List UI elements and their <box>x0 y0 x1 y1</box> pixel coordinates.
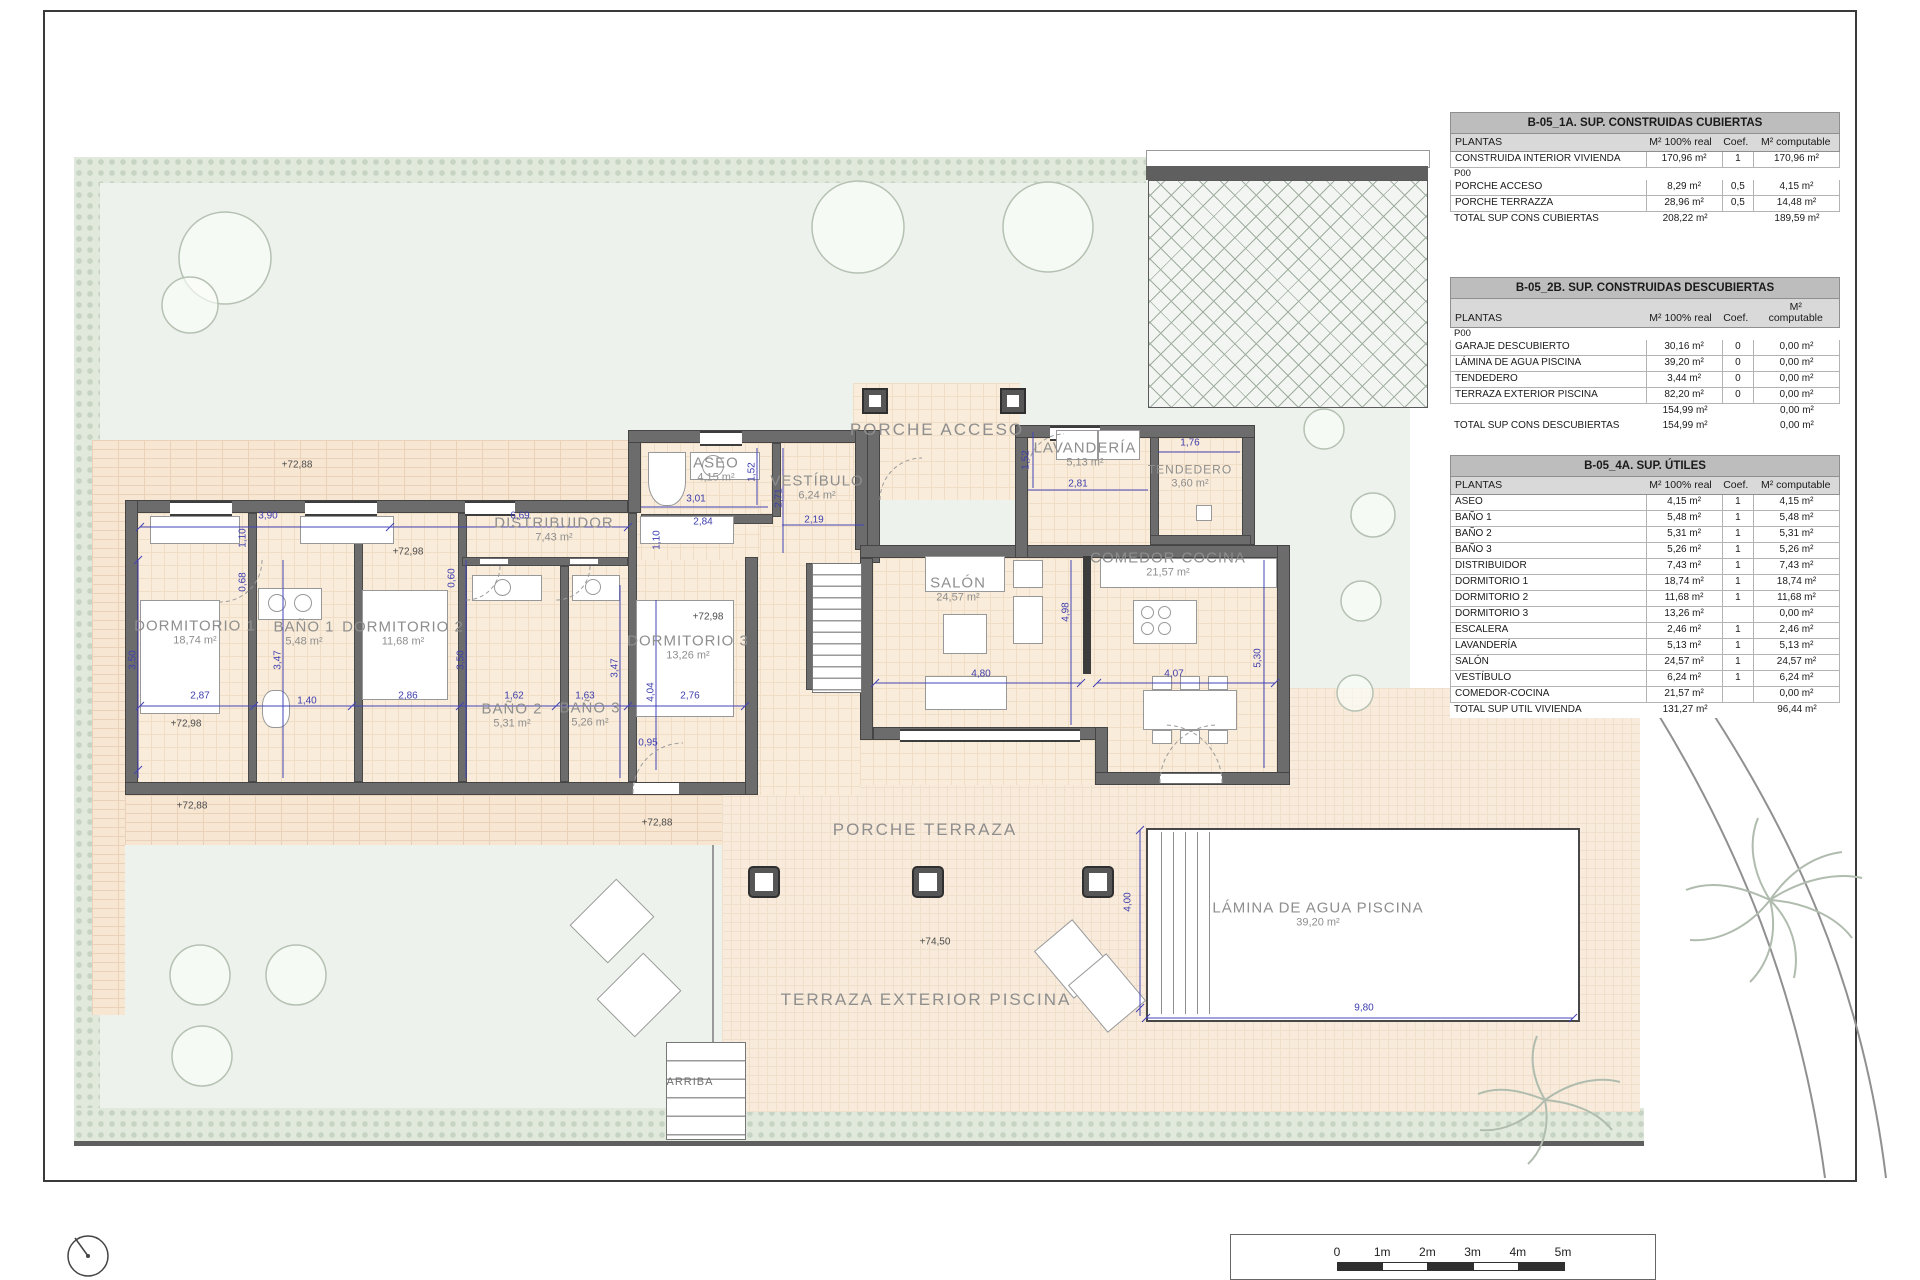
chair <box>1208 730 1228 744</box>
table-row: P00 <box>1450 328 1840 340</box>
door-opening <box>1160 774 1222 783</box>
dimension-label: 1,62 <box>504 691 523 702</box>
table-cell: 0 <box>1723 340 1754 355</box>
room-label: DORMITORIO 313,26 m² <box>627 634 749 663</box>
toilet <box>648 452 686 506</box>
dimension-label: 0,68 <box>238 572 249 591</box>
dimension-label: 2,81 <box>1068 479 1087 490</box>
table-cell: 0,00 m² <box>1754 607 1840 622</box>
room-label: LÁMINA DE AGUA PISCINA39,20 m² <box>1212 901 1423 930</box>
site-wall-north <box>1146 166 1428 180</box>
level-mark: +72,88 <box>177 801 208 812</box>
scale-label: 1m <box>1374 1245 1391 1259</box>
scale-segment <box>1518 1262 1565 1271</box>
table-cell: TENDEDERO <box>1450 372 1647 387</box>
room-label: DORMITORIO 118,74 m² <box>134 619 256 648</box>
level-mark: +72,88 <box>282 460 313 471</box>
dimension-label: 2,87 <box>190 691 209 702</box>
table-cell: 131,27 m² <box>1647 703 1723 718</box>
table-header-cell: M² computable <box>1752 477 1839 494</box>
terrace-column <box>1082 866 1114 898</box>
dimension-label: 9,80 <box>1354 1003 1373 1014</box>
table-row: CONSTRUIDA INTERIOR VIVIENDA170,96 m²117… <box>1450 152 1840 168</box>
table-header: PLANTASM² 100% realCoef.M² computable <box>1450 299 1840 328</box>
table-cell: LAVANDERÍA <box>1450 639 1647 654</box>
table-cell: 7,43 m² <box>1754 559 1840 574</box>
table-header-cell: M² 100% real <box>1642 134 1719 151</box>
scale-bar <box>1230 1234 1656 1280</box>
table-cell: 5,26 m² <box>1647 543 1723 558</box>
table-cell: 14,48 m² <box>1754 196 1840 211</box>
table-header-cell: PLANTAS <box>1451 310 1642 327</box>
room-label: DORMITORIO 211,68 m² <box>342 620 464 649</box>
dimension-label: 6,69 <box>510 511 529 522</box>
staircase <box>812 563 862 693</box>
scale-segment <box>1337 1262 1384 1271</box>
wardrobe <box>300 516 394 544</box>
room-label: BAÑO 25,31 m² <box>481 702 542 731</box>
dimension-label: 4,07 <box>1164 669 1183 680</box>
table-cell: 24,57 m² <box>1647 655 1723 670</box>
porch-column <box>1000 388 1026 414</box>
table-cell: 0 <box>1723 388 1754 403</box>
table-cell: 8,29 m² <box>1647 180 1723 195</box>
room-label: COMEDOR-COCINA21,57 m² <box>1090 551 1246 580</box>
hob-burner <box>1141 606 1154 619</box>
sink <box>494 579 511 596</box>
dimension-label: 1,52 <box>747 462 758 481</box>
dimension-label: 3,90 <box>258 511 277 522</box>
table-cell: DORMITORIO 1 <box>1450 575 1647 590</box>
table-cell: 1 <box>1723 671 1754 686</box>
dimension-label: 1,10 <box>652 530 663 549</box>
table-cell: 82,20 m² <box>1647 388 1723 403</box>
table-cell: 28,96 m² <box>1647 196 1723 211</box>
table-cell: 1 <box>1723 495 1754 510</box>
room-label: PORCHE ACCESO <box>850 422 1024 438</box>
table-header: PLANTASM² 100% realCoef.M² computable <box>1450 134 1840 152</box>
table-cell: 0,00 m² <box>1754 340 1840 355</box>
scale-label: 4m <box>1509 1245 1526 1259</box>
dimension-label: 4,80 <box>971 669 990 680</box>
table-cell: 0,00 m² <box>1754 372 1840 387</box>
dimension-label: 2,19 <box>804 515 823 526</box>
terrace-column <box>748 866 780 898</box>
scale-label: 5m <box>1555 1245 1572 1259</box>
sofa <box>925 676 1007 710</box>
table-cell: 2,46 m² <box>1647 623 1723 638</box>
table-cell: LÁMINA DE AGUA PISCINA <box>1450 356 1647 371</box>
table-row: VESTÍBULO6,24 m²16,24 m² <box>1450 671 1840 687</box>
door-opening <box>633 783 679 794</box>
table-cell: 1 <box>1723 655 1754 670</box>
table-header-cell: M² computable <box>1752 299 1839 327</box>
terrace-column <box>912 866 944 898</box>
scale-segment <box>1473 1262 1520 1271</box>
table-cell: 21,57 m² <box>1647 687 1723 702</box>
wall <box>745 557 758 795</box>
table-cell: TOTAL SUP CONS DESCUBIERTAS <box>1450 419 1647 434</box>
table-cell: 1 <box>1723 527 1754 542</box>
table-cell: CONSTRUIDA INTERIOR VIVIENDA <box>1450 152 1647 167</box>
hedge-top <box>74 157 1146 183</box>
table-cell: 13,26 m² <box>1647 607 1723 622</box>
dimension-label: 1,40 <box>297 696 316 707</box>
table-cell: TOTAL SUP CONS CUBIERTAS <box>1450 212 1647 227</box>
wall <box>125 500 138 795</box>
table-row: TOTAL SUP CONS DESCUBIERTAS154,99 m²0,00… <box>1450 419 1840 434</box>
chair <box>1180 730 1200 744</box>
chair <box>1208 676 1228 690</box>
hob-burner <box>1158 606 1171 619</box>
table-cell: 189,59 m² <box>1754 212 1840 227</box>
table-cell: 0,5 <box>1723 196 1754 211</box>
level-mark: +72,98 <box>171 719 202 730</box>
door-opening <box>480 559 508 564</box>
table-row: LAVANDERÍA5,13 m²15,13 m² <box>1450 639 1840 655</box>
table-title: B-05_1A. SUP. CONSTRUIDAS CUBIERTAS <box>1450 112 1840 134</box>
garage-uncovered-area <box>1148 180 1428 408</box>
dimension-label: 5,30 <box>1253 648 1264 667</box>
hedge-bottom <box>74 1108 1644 1141</box>
table-cell: 1 <box>1723 152 1754 167</box>
table-cell: TOTAL SUP UTIL VIVIENDA <box>1450 703 1647 718</box>
porch-column <box>862 388 888 414</box>
wardrobe <box>150 516 240 544</box>
apron-west <box>92 440 125 1015</box>
dimension-label: 1,63 <box>575 691 594 702</box>
dimension-label: 3,47 <box>610 658 621 677</box>
table-cell: BAÑO 1 <box>1450 511 1647 526</box>
wall <box>628 430 880 443</box>
table-cell: DISTRIBUIDOR <box>1450 559 1647 574</box>
table-cell: 1 <box>1723 543 1754 558</box>
table-cell: P00 <box>1450 168 1840 180</box>
table-cell: BAÑO 2 <box>1450 527 1647 542</box>
table-cell: 5,13 m² <box>1647 639 1723 654</box>
room-label: TENDEDERO3,60 m² <box>1148 462 1232 491</box>
side-table <box>1013 560 1043 588</box>
table-header-cell: M² 100% real <box>1642 310 1719 327</box>
table-cell: 0,00 m² <box>1754 388 1840 403</box>
table-cell: ASEO <box>1450 495 1647 510</box>
table-cell <box>1450 404 1647 419</box>
room-label: BAÑO 35,26 m² <box>559 701 620 730</box>
dimension-label: 2,84 <box>693 517 712 528</box>
dining-table <box>1143 690 1237 730</box>
table-cell: DORMITORIO 2 <box>1450 591 1647 606</box>
room-label: ARRIBA <box>667 1074 714 1090</box>
table-title: B-05_4A. SUP. ÚTILES <box>1450 455 1840 477</box>
dimension-label: 3,50 <box>456 650 467 669</box>
sink <box>585 579 601 595</box>
table-cell: 5,31 m² <box>1647 527 1723 542</box>
table-cell: 6,24 m² <box>1754 671 1840 686</box>
wall <box>1277 545 1290 785</box>
drain <box>1196 505 1212 521</box>
wall <box>560 566 569 782</box>
area-table: B-05_4A. SUP. ÚTILESPLANTASM² 100% realC… <box>1450 455 1840 718</box>
table-cell: 7,43 m² <box>1647 559 1723 574</box>
window-salon <box>900 729 1080 742</box>
table-header-cell: PLANTAS <box>1451 477 1642 494</box>
table-header-cell: M² 100% real <box>1642 477 1719 494</box>
table-cell <box>1723 404 1754 419</box>
armchair <box>1013 596 1043 644</box>
table-row: 154,99 m²0,00 m² <box>1450 404 1840 419</box>
hob-burner <box>1141 622 1154 635</box>
table-header: PLANTASM² 100% realCoef.M² computable <box>1450 477 1840 495</box>
table-cell: 1 <box>1723 511 1754 526</box>
dimension-label: 4,98 <box>1061 602 1072 621</box>
room-label: TERRAZA EXTERIOR PISCINA <box>781 992 1072 1008</box>
table-cell: 18,74 m² <box>1647 575 1723 590</box>
dimension-label: 1,10 <box>238 528 249 547</box>
table-row: BAÑO 25,31 m²15,31 m² <box>1450 527 1840 543</box>
table-header-cell: Coef. <box>1719 134 1752 151</box>
table-cell: 1 <box>1723 559 1754 574</box>
table-cell: 1 <box>1723 639 1754 654</box>
scale-label: 3m <box>1464 1245 1481 1259</box>
hob-burner <box>1158 622 1171 635</box>
table-cell: PORCHE ACCESO <box>1450 180 1647 195</box>
table-row: COMEDOR-COCINA21,57 m²0,00 m² <box>1450 687 1840 703</box>
table-cell <box>1723 687 1754 702</box>
toilet <box>262 690 290 728</box>
dimension-label: 4,00 <box>1123 892 1134 911</box>
table-row: DISTRIBUIDOR7,43 m²17,43 m² <box>1450 559 1840 575</box>
table-cell: 170,96 m² <box>1647 152 1723 167</box>
wall <box>248 513 257 782</box>
table-cell: SALÓN <box>1450 655 1647 670</box>
table-cell: 39,20 m² <box>1647 356 1723 371</box>
dimension-label: 2,86 <box>398 691 417 702</box>
scale-label: 2m <box>1419 1245 1436 1259</box>
table-cell: 1 <box>1723 623 1754 638</box>
table-cell: 5,13 m² <box>1754 639 1840 654</box>
table-row: BAÑO 15,48 m²15,48 m² <box>1450 511 1840 527</box>
table-cell: BAÑO 3 <box>1450 543 1647 558</box>
room-label: SALÓN24,57 m² <box>930 576 986 605</box>
table-cell: 5,48 m² <box>1754 511 1840 526</box>
table-row: TENDEDERO3,44 m²00,00 m² <box>1450 372 1840 388</box>
table-row: TERRAZA EXTERIOR PISCINA82,20 m²00,00 m² <box>1450 388 1840 404</box>
dimension-label: 3,50 <box>128 650 139 669</box>
table-cell <box>1723 419 1754 434</box>
table-cell: 0,00 m² <box>1754 687 1840 702</box>
dimension-label: 1,52 <box>1021 450 1032 469</box>
table-cell: 30,16 m² <box>1647 340 1723 355</box>
wall <box>1015 425 1028 558</box>
dimension-label: 1,76 <box>1180 438 1199 449</box>
table-cell: 1 <box>1723 575 1754 590</box>
site-wall-bottom <box>74 1141 1644 1146</box>
window <box>305 501 377 516</box>
scale-segment <box>1427 1262 1474 1271</box>
table-cell: 154,99 m² <box>1647 419 1723 434</box>
wall <box>1242 437 1255 545</box>
level-mark: +74,50 <box>920 937 951 948</box>
table-cell: 0,00 m² <box>1754 404 1840 419</box>
table-cell <box>1723 607 1754 622</box>
table-row: PORCHE ACCESO8,29 m²0,54,15 m² <box>1450 180 1840 196</box>
table-cell: 5,31 m² <box>1754 527 1840 542</box>
table-cell: GARAJE DESCUBIERTO <box>1450 340 1647 355</box>
dimension-label: 0,60 <box>447 568 458 587</box>
dimension-label: 3,47 <box>273 650 284 669</box>
scale-label: 0 <box>1334 1245 1341 1259</box>
table-row: PORCHE TERRAZZA28,96 m²0,514,48 m² <box>1450 196 1840 212</box>
table-header-cell: PLANTAS <box>1451 134 1642 151</box>
pool-steps <box>1150 832 1212 1014</box>
table-cell: 11,68 m² <box>1647 591 1723 606</box>
table-cell: ESCALERA <box>1450 623 1647 638</box>
table-cell: 3,44 m² <box>1647 372 1723 387</box>
table-cell: 0 <box>1723 372 1754 387</box>
table-cell: TERRAZA EXTERIOR PISCINA <box>1450 388 1647 403</box>
table-cell: 11,68 m² <box>1754 591 1840 606</box>
table-row: BAÑO 35,26 m²15,26 m² <box>1450 543 1840 559</box>
table-cell: PORCHE TERRAZZA <box>1450 196 1647 211</box>
level-mark: +72,98 <box>393 547 424 558</box>
table-cell <box>1723 703 1754 718</box>
table-row: ESCALERA2,46 m²12,46 m² <box>1450 623 1840 639</box>
floor-plan-sheet: DORMITORIO 118,74 m²BAÑO 15,48 m²DORMITO… <box>0 0 1920 1280</box>
table-cell: 0,00 m² <box>1754 356 1840 371</box>
table-cell: P00 <box>1450 328 1840 340</box>
table-row: TOTAL SUP UTIL VIVIENDA131,27 m²96,44 m² <box>1450 703 1840 718</box>
window <box>170 501 232 516</box>
table-cell: 5,48 m² <box>1647 511 1723 526</box>
table-row: DORMITORIO 118,74 m²118,74 m² <box>1450 575 1840 591</box>
table-header-cell: Coef. <box>1719 310 1752 327</box>
compass-icon <box>68 1236 108 1276</box>
area-table: B-05_2B. SUP. CONSTRUIDAS DESCUBIERTASPL… <box>1450 277 1840 434</box>
wall <box>1150 437 1159 545</box>
table-cell: 6,24 m² <box>1647 671 1723 686</box>
table-cell: 18,74 m² <box>1754 575 1840 590</box>
paving-edge <box>712 845 714 1042</box>
coffee-table <box>943 614 987 654</box>
table-cell: 5,26 m² <box>1754 543 1840 558</box>
table-header-cell: Coef. <box>1719 477 1752 494</box>
table-cell: VESTÍBULO <box>1450 671 1647 686</box>
scale-segment <box>1382 1262 1429 1271</box>
table-row: SALÓN24,57 m²124,57 m² <box>1450 655 1840 671</box>
table-row: P00 <box>1450 168 1840 180</box>
table-cell: 0 <box>1723 356 1754 371</box>
table-cell: 208,22 m² <box>1647 212 1723 227</box>
table-cell: 4,15 m² <box>1754 495 1840 510</box>
table-row: DORMITORIO 211,68 m²111,68 m² <box>1450 591 1840 607</box>
table-cell: 4,15 m² <box>1647 495 1723 510</box>
room-label: PORCHE TERRAZA <box>833 822 1018 838</box>
dimension-label: 2,76 <box>680 691 699 702</box>
table-cell: 96,44 m² <box>1754 703 1840 718</box>
table-header-cell: M² computable <box>1752 134 1839 151</box>
dimension-label: 2,71 <box>774 488 785 507</box>
table-cell: 24,57 m² <box>1754 655 1840 670</box>
table-cell: 1 <box>1723 591 1754 606</box>
room-label: LAVANDERÍA5,13 m² <box>1034 441 1137 470</box>
door-opening <box>570 559 598 564</box>
table-row: ASEO4,15 m²14,15 m² <box>1450 495 1840 511</box>
level-mark: +72,88 <box>642 818 673 829</box>
table-cell: 0,5 <box>1723 180 1754 195</box>
table-title: B-05_2B. SUP. CONSTRUIDAS DESCUBIERTAS <box>1450 277 1840 299</box>
sink <box>268 594 286 612</box>
dimension-label: 4,04 <box>646 682 657 701</box>
table-row: GARAJE DESCUBIERTO30,16 m²00,00 m² <box>1450 340 1840 356</box>
table-cell: 4,15 m² <box>1754 180 1840 195</box>
dimension-label: 3,01 <box>686 494 705 505</box>
wall <box>867 430 880 563</box>
table-cell: 170,96 m² <box>1754 152 1840 167</box>
table-row: LÁMINA DE AGUA PISCINA39,20 m²00,00 m² <box>1450 356 1840 372</box>
dimension-label: 0,95 <box>638 738 657 749</box>
window <box>700 431 742 446</box>
entrance-ramp <box>666 1042 746 1140</box>
table-row: DORMITORIO 313,26 m²0,00 m² <box>1450 607 1840 623</box>
sink <box>294 594 312 612</box>
room-label: BAÑO 15,48 m² <box>273 620 334 649</box>
table-cell: 0,00 m² <box>1754 419 1840 434</box>
table-cell <box>1723 212 1754 227</box>
table-row: TOTAL SUP CONS CUBIERTAS208,22 m²189,59 … <box>1450 212 1840 227</box>
table-cell: COMEDOR-COCINA <box>1450 687 1647 702</box>
room-label: ASEO4,15 m² <box>693 456 739 485</box>
area-table: B-05_1A. SUP. CONSTRUIDAS CUBIERTASPLANT… <box>1450 112 1840 227</box>
table-cell: 154,99 m² <box>1647 404 1723 419</box>
wall <box>1150 535 1251 545</box>
table-cell: 2,46 m² <box>1754 623 1840 638</box>
level-mark: +72,98 <box>693 612 724 623</box>
chair <box>1152 730 1172 744</box>
table-cell: DORMITORIO 3 <box>1450 607 1647 622</box>
